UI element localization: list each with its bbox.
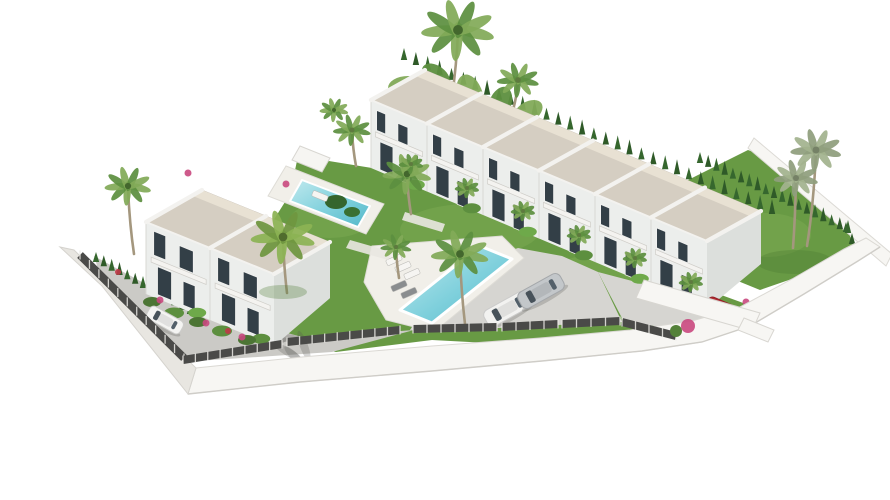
townhouse-window <box>218 257 230 286</box>
townhouse-window <box>657 228 666 252</box>
palm-crown-center <box>465 186 469 190</box>
townhouse-window <box>222 293 236 327</box>
townhouse-window <box>492 189 505 222</box>
townhouse-window <box>454 147 464 169</box>
cypress-shrub <box>579 120 585 135</box>
townhouse-window <box>247 307 259 336</box>
cypress-shrub <box>713 158 719 171</box>
townhouse-window <box>566 194 576 216</box>
entrance-bougainvillea <box>681 319 695 333</box>
red-flowers <box>225 328 231 334</box>
facade-shrub <box>188 308 206 318</box>
cypress-shrub <box>93 252 99 262</box>
red-flowers <box>115 269 121 275</box>
cypress-shrub <box>484 80 490 95</box>
entrance-bush <box>670 325 682 337</box>
garden-palm <box>319 98 348 123</box>
garden-palm <box>333 114 371 166</box>
townhouse-window <box>158 267 172 301</box>
pool-planter-bush <box>344 207 360 217</box>
townhouse-window <box>183 281 195 310</box>
townhouse-window <box>380 142 393 175</box>
roadside-palm <box>104 166 151 254</box>
bougainvillea-flowers <box>185 170 192 177</box>
townhouse-window <box>678 241 688 263</box>
townhouse-window <box>489 157 498 181</box>
townhouse-window <box>433 134 442 158</box>
cypress-shrub <box>650 151 656 164</box>
cypress-shrub <box>662 155 668 169</box>
palm-crown-center <box>515 77 521 83</box>
cypress-shrub <box>543 108 549 120</box>
townhouse-window <box>154 231 166 260</box>
cypress-shrub <box>615 135 621 149</box>
palm-crown-center <box>279 233 288 242</box>
palm-crown-center <box>813 147 820 154</box>
palm-crown-center <box>409 162 413 166</box>
townhouse-window <box>510 170 520 192</box>
palm-crown-center <box>521 209 525 213</box>
palm-crown-center <box>125 183 131 189</box>
cypress-shrub <box>674 159 680 174</box>
facade-shrub <box>575 250 593 260</box>
cypress-shrub <box>705 155 711 167</box>
palm-crown-center <box>453 25 463 35</box>
facade-shrub <box>463 203 481 213</box>
palm-crown-center <box>633 256 637 260</box>
render-canvas <box>0 0 890 500</box>
bougainvillea-flowers <box>203 320 210 327</box>
townhouse-window <box>604 236 617 269</box>
facade-shrub <box>519 227 537 237</box>
townhouse-window <box>622 217 632 239</box>
bougainvillea-flowers <box>239 334 246 341</box>
cypress-shrub <box>401 48 407 60</box>
cypress-shrub <box>697 152 703 163</box>
cypress-shrub <box>413 52 419 65</box>
bougainvillea-flowers <box>283 181 290 188</box>
townhouse-window <box>548 212 561 245</box>
cypress-shrub <box>638 147 644 159</box>
architectural-render <box>0 0 890 500</box>
palm-crown-center <box>332 108 336 112</box>
palm-crown-center <box>349 127 354 132</box>
townhouse-window <box>601 204 610 228</box>
cypress-shrub <box>603 132 609 145</box>
cypress-shrub <box>591 128 597 140</box>
bougainvillea-flowers <box>157 297 164 304</box>
cypress-shrub <box>626 139 632 154</box>
townhouse-window <box>398 123 408 145</box>
townhouse-window <box>545 181 554 205</box>
palm-crown-center <box>394 245 398 249</box>
palm-crown-center <box>456 250 464 258</box>
cypress-shrub <box>555 112 561 125</box>
palm-crown-center <box>793 175 799 181</box>
townhouse-window <box>377 110 386 134</box>
townhouse-window <box>436 165 449 198</box>
cypress-shrub <box>567 116 573 130</box>
tree-shadow <box>259 285 307 299</box>
cypress-shrub <box>686 167 692 179</box>
palm-crown-center <box>577 233 581 237</box>
palm-crown-center <box>689 280 693 284</box>
